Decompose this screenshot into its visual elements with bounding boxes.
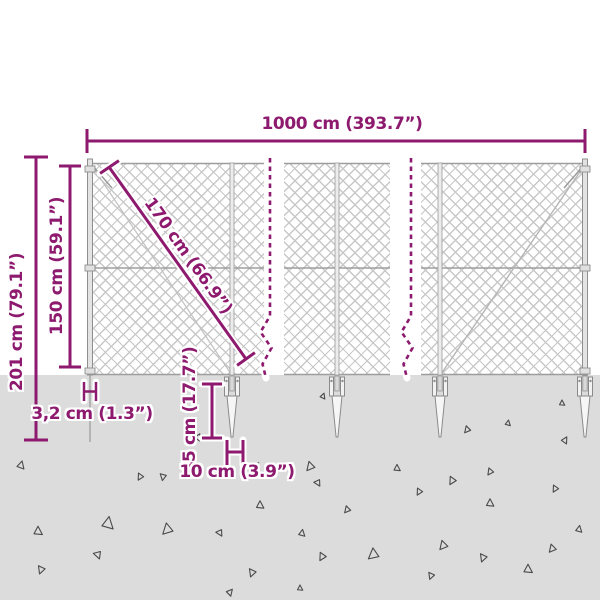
ground-triangle	[550, 485, 559, 494]
ground-triangle	[576, 525, 583, 532]
ground-triangle	[342, 506, 351, 515]
ground-triangle	[299, 529, 306, 536]
dimension-label-anchor-depth: 45 cm (17.7”)	[180, 347, 200, 474]
ground-triangle	[298, 585, 303, 590]
ground-triangle	[17, 460, 26, 469]
ground-triangle	[247, 569, 256, 578]
ground-triangle	[257, 501, 264, 508]
ground-triangle	[478, 554, 487, 563]
ground-triangle	[159, 474, 166, 481]
dimension-label-total-width: 1000 cm (393.7”)	[261, 114, 422, 134]
dimension-label-post-diameter: 3,2 cm (1.3”)	[31, 404, 152, 424]
ground-triangle	[546, 544, 556, 554]
ground-triangle	[394, 464, 400, 470]
dimension-label-anchor-width: 10 cm (3.9”)	[179, 462, 294, 482]
dimension-total-height	[24, 157, 48, 440]
ground-triangle	[314, 479, 323, 488]
dimension-anchor-depth	[202, 384, 222, 438]
ground-triangle	[560, 400, 565, 405]
ground-triangle	[317, 552, 327, 562]
spike-anchor	[225, 376, 240, 437]
spike-anchor	[578, 376, 593, 437]
ground-triangle	[485, 468, 494, 477]
ground-triangle	[462, 426, 471, 435]
ground-triangle	[36, 566, 45, 575]
fence-post	[335, 163, 339, 375]
diagram-overlay	[0, 0, 600, 600]
dimension-label-total-height: 201 cm (79.1”)	[7, 253, 27, 391]
spike-anchor	[433, 376, 448, 437]
ground-triangle	[505, 420, 511, 426]
ground-triangle	[561, 435, 570, 444]
ground-triangle	[524, 564, 532, 572]
ground-triangle	[93, 551, 102, 560]
ground-triangle	[487, 499, 494, 506]
ground-triangle	[414, 488, 423, 497]
ground-triangle	[437, 540, 449, 552]
ground-triangle	[135, 473, 144, 482]
ground-triangle	[427, 572, 435, 580]
ground-triangle	[226, 587, 235, 596]
spike-anchors	[225, 376, 593, 437]
ground-triangle	[365, 548, 380, 563]
ground-triangle	[159, 523, 174, 538]
ground-triangle	[34, 526, 42, 534]
ground-triangle	[216, 529, 225, 538]
fence-post	[438, 163, 442, 375]
brace-wire-right-panel	[441, 166, 584, 374]
ground-triangle	[304, 461, 316, 473]
spike-anchor	[330, 376, 345, 437]
fence-dimension-diagram: 1000 cm (393.7”) 201 cm (79.1”) 150 cm (…	[0, 0, 600, 600]
ground-triangle	[102, 516, 115, 529]
ground-triangle	[320, 392, 327, 399]
dimension-label-fence-height: 150 cm (59.1”)	[47, 197, 67, 335]
ground-triangle	[447, 476, 457, 486]
